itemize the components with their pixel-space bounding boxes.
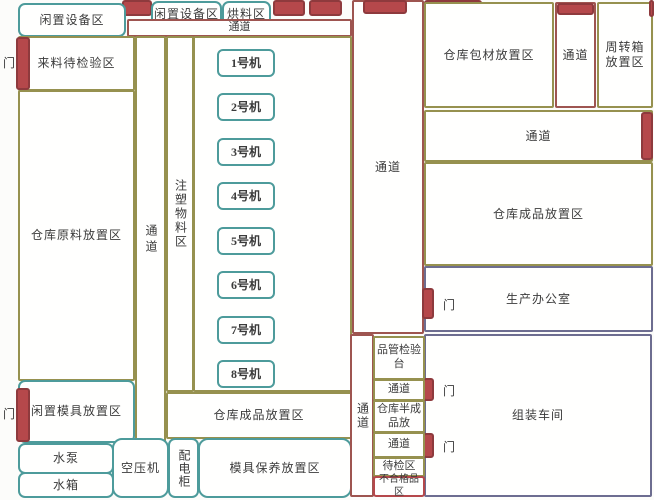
door-label: 门 xyxy=(441,382,457,398)
entry-block xyxy=(363,0,407,14)
area-water-tank: 水箱 xyxy=(18,472,114,498)
area-air-compressor: 空压机 xyxy=(112,438,169,498)
aisle-small-1: 通道 xyxy=(373,379,425,401)
door-block xyxy=(16,388,30,442)
aisle-bottom-right-label: 通道 xyxy=(355,402,370,430)
door-block xyxy=(16,37,30,90)
area-nonconforming: 不合格品区 xyxy=(373,476,425,497)
area-packaging-warehouse: 仓库包材放置区 xyxy=(424,2,554,108)
aisle-top: 通道 xyxy=(127,19,352,37)
area-idle-equipment-left: 闲置设备区 xyxy=(18,3,126,37)
area-finished-goods-right: 仓库成品放置区 xyxy=(424,162,653,266)
entry-block xyxy=(649,0,654,17)
area-injection-material: 注塑物料区 xyxy=(166,36,194,392)
machine-1: 1号机 xyxy=(217,49,275,77)
area-raw-material-warehouse: 仓库原料放置区 xyxy=(18,90,135,381)
entry-block xyxy=(273,0,305,16)
aisle-top-right: 通道 xyxy=(555,2,596,108)
aisle-central: 通道 xyxy=(352,0,424,334)
entry-block xyxy=(122,0,152,16)
machine-3: 3号机 xyxy=(217,138,275,166)
machine-6: 6号机 xyxy=(217,271,275,299)
machine-2: 2号机 xyxy=(217,93,275,121)
door-block xyxy=(422,288,434,319)
aisle-vertical-left: 通道 xyxy=(135,36,166,443)
machine-4: 4号机 xyxy=(217,182,275,210)
area-finished-goods-mid: 仓库成品放置区 xyxy=(166,392,352,439)
door-label: 门 xyxy=(441,296,457,312)
machine-5: 5号机 xyxy=(217,227,275,255)
aisle-small-2: 通道 xyxy=(373,432,425,458)
entry-block xyxy=(309,0,342,16)
door-label: 门 xyxy=(441,438,457,454)
area-power-cabinet-label: 配电柜 xyxy=(176,449,191,488)
entry-block xyxy=(641,112,653,160)
entry-block xyxy=(557,3,594,15)
door-label: 门 xyxy=(1,54,17,70)
machine-7: 7号机 xyxy=(217,316,275,344)
door-label: 门 xyxy=(1,405,17,421)
area-injection-material-label: 注塑物料区 xyxy=(173,179,188,249)
area-production-office: 生产办公室 xyxy=(424,266,653,332)
machine-hall: 1号机 2号机 3号机 4号机 5号机 6号机 7号机 8号机 xyxy=(193,36,352,392)
area-incoming-inspection: 来料待检验区 xyxy=(18,36,135,91)
aisle-vertical-left-label: 通道 xyxy=(143,224,158,256)
area-idle-mold: 闲置模具放置区 xyxy=(18,380,135,443)
area-turnover-box: 周转箱放置区 xyxy=(597,2,653,108)
area-semi-finished: 仓库半成品放 xyxy=(373,400,425,433)
area-water-pump: 水泵 xyxy=(18,443,114,474)
aisle-bottom-right-vertical: 通道 xyxy=(350,334,374,497)
machine-8: 8号机 xyxy=(217,360,275,388)
factory-floor-plan: 闲置设备区 烘料区 通道 闲置设备区 来料待检验区 仓库原料放置区 闲置模具放置… xyxy=(0,0,654,500)
area-power-cabinet: 配电柜 xyxy=(168,438,199,498)
area-qc-inspection: 品管检验台 xyxy=(373,336,425,380)
area-assembly-workshop: 组装车间 xyxy=(424,334,652,497)
aisle-right-horizontal: 通道 xyxy=(424,110,653,162)
area-mold-maintenance: 模具保养放置区 xyxy=(198,438,352,498)
